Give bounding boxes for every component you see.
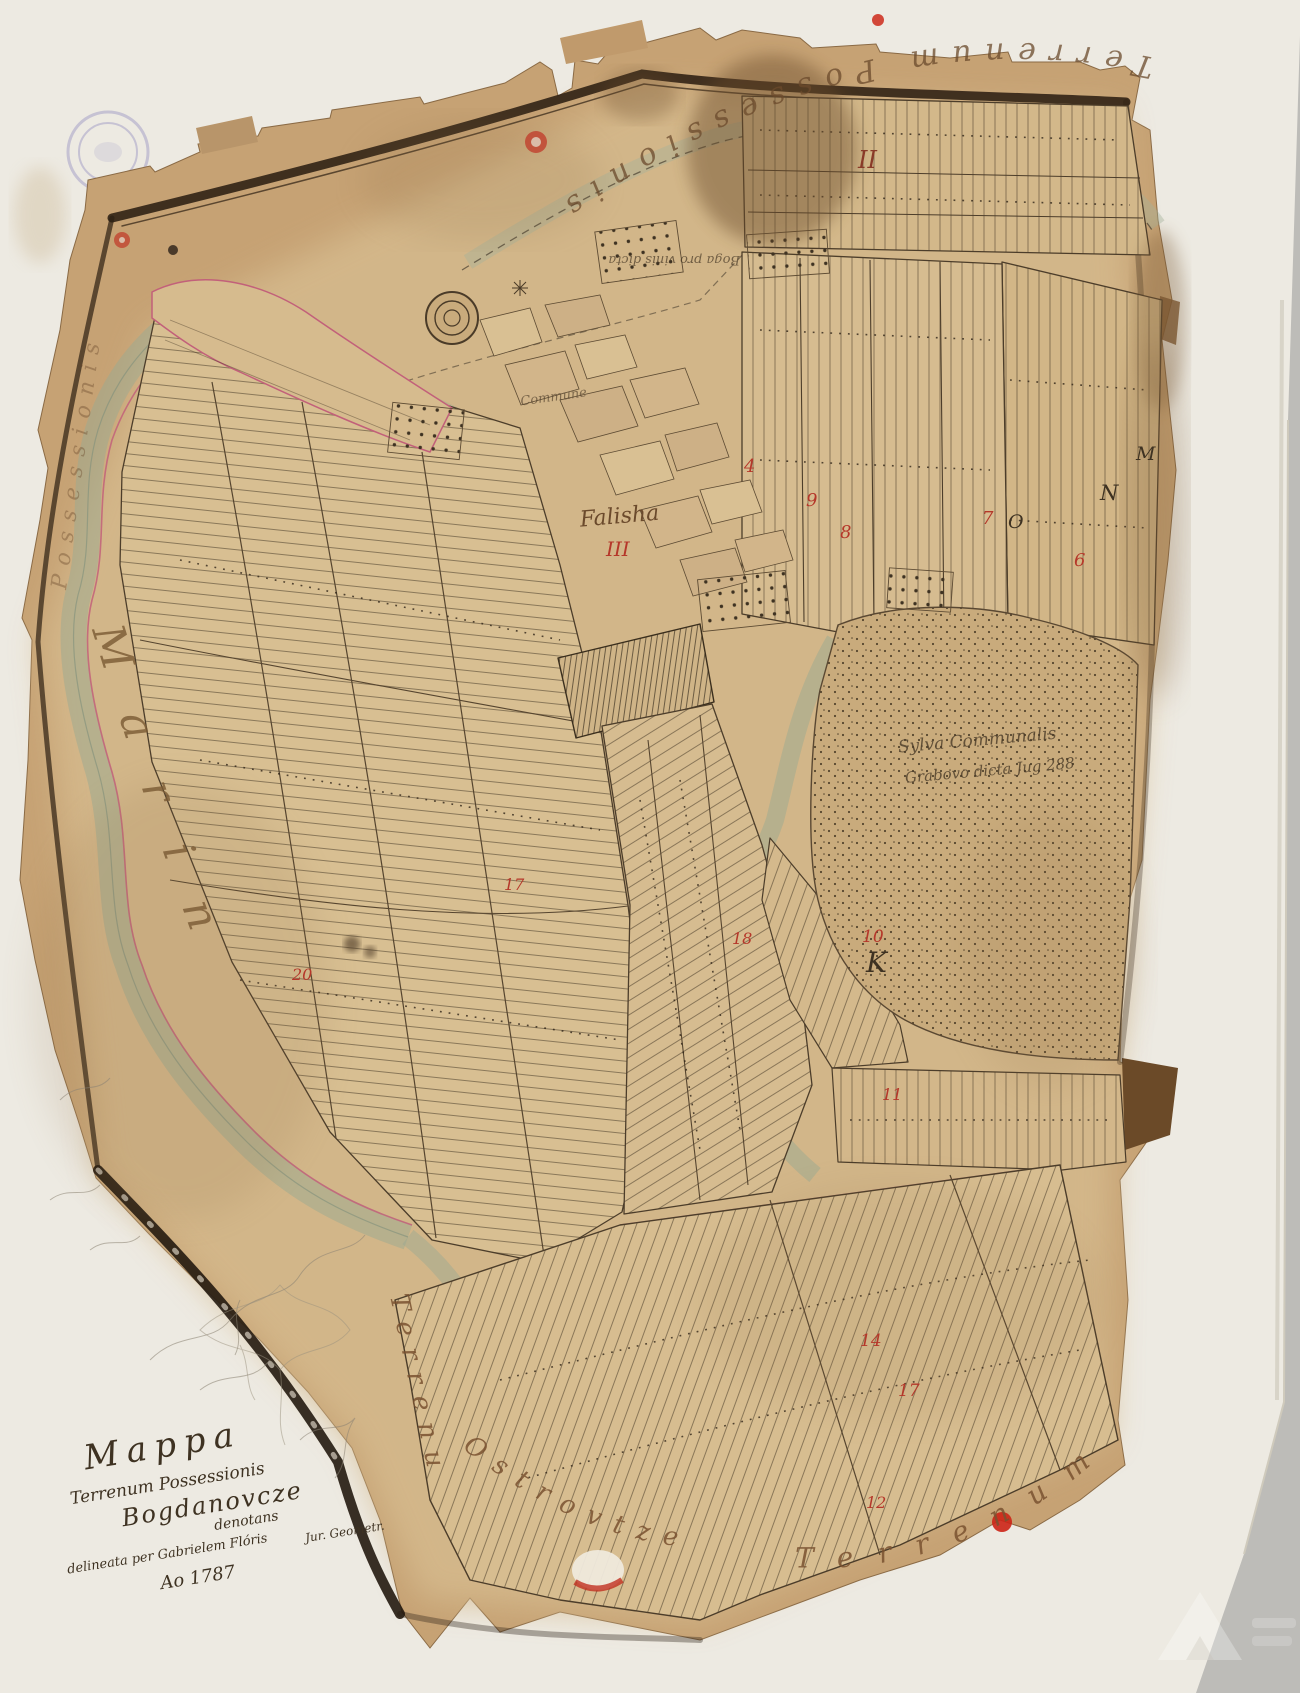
section-letter-n: N [1099,481,1119,505]
svg-text:12: 12 [866,1493,886,1512]
svg-text:20: 20 [291,965,312,984]
svg-text:14: 14 [860,1331,882,1351]
map-scan: Terrenum Possessionis Bersadin Possessio… [0,0,1300,1693]
svg-text:10: 10 [862,927,884,947]
ringed-mound [426,292,478,344]
field-block-below-forest [832,1068,1126,1170]
svg-text:6: 6 [1074,550,1085,571]
svg-text:17: 17 [898,1381,920,1401]
svg-text:11: 11 [882,1085,902,1104]
section-letter-k: K [865,946,889,979]
label-falisha-numeral: III [605,537,631,561]
svg-text:7: 7 [982,508,994,529]
svg-text:4: 4 [743,456,755,477]
svg-text:8: 8 [840,522,851,543]
compass-star [512,280,528,296]
section-roman-ii: II [857,146,877,174]
svg-text:9: 9 [806,490,817,511]
section-letter-o: O [1008,511,1024,533]
red-spot [872,14,884,26]
scanned-map-page: Terrenum Possessionis Bersadin Possessio… [0,0,1300,1693]
label-vineyard-note: Boga pro vinis dicta [608,252,741,267]
section-letter-m: M [1135,443,1156,465]
svg-text:17: 17 [504,875,525,894]
svg-text:18: 18 [732,929,752,948]
